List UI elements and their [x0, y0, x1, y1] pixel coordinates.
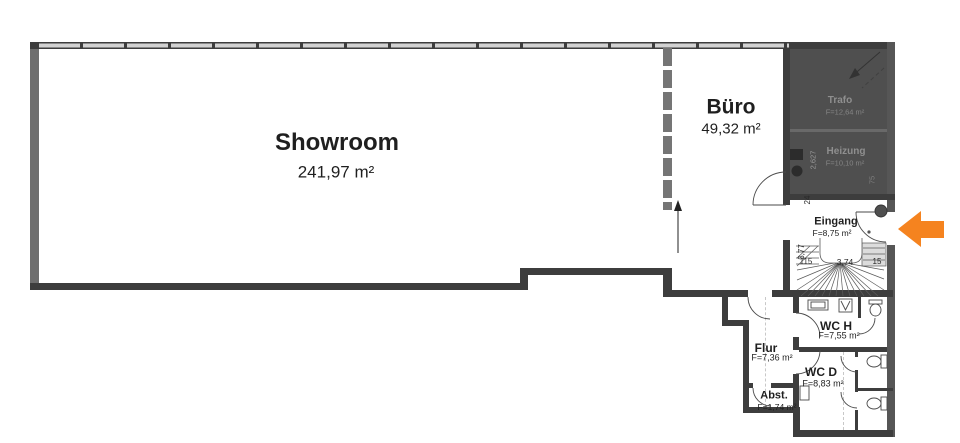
cable-route-arrow-icon	[849, 52, 884, 88]
door-flur-wch	[796, 313, 820, 337]
wch-toilet-tank	[869, 300, 882, 304]
room-area-showroom: 241,97 m²	[298, 164, 375, 181]
room-area-eingang: F=8,75 m²	[813, 229, 852, 238]
wch-sink-basin	[811, 302, 825, 308]
room-label-eingang: Eingang	[814, 217, 857, 228]
dim-3-74: 3,74	[837, 258, 854, 267]
floor-plan: Showroom 241,97 m² Büro 49,32 m² Trafo F…	[0, 0, 960, 443]
room-area-flur: F=7,36 m²	[751, 354, 792, 363]
dim-24: 24	[804, 196, 812, 205]
heizung-equipment-round	[792, 166, 803, 177]
direction-arrow-icon	[674, 200, 682, 253]
door-buero-flur	[748, 297, 770, 319]
dim-75: 75	[868, 176, 876, 184]
room-area-wcd: F=8,83 m²	[802, 380, 843, 389]
door-wcd-stall-1	[841, 356, 857, 372]
wcd-toilet2-bowl	[867, 398, 881, 409]
door-buero-eingang	[753, 172, 786, 205]
heizung-equipment-box	[790, 149, 803, 160]
door-wch-stall	[859, 318, 875, 334]
dim-2-627: 2,627	[809, 151, 817, 170]
room-label-trafo: Trafo	[828, 96, 852, 106]
entrance-marker-arrow-icon	[898, 211, 944, 247]
staircase	[796, 238, 886, 296]
room-area-trafo: F=12,64 m²	[826, 108, 865, 116]
room-label-wcd: WC D	[805, 366, 837, 378]
wcd-toilet1-bowl	[867, 356, 881, 367]
room-label-heizung: Heizung	[827, 147, 866, 157]
column-circle	[875, 205, 887, 217]
door-handle-dot	[867, 230, 870, 233]
room-label-buero: Büro	[707, 97, 756, 118]
room-label-abst: Abst.	[760, 391, 788, 402]
room-area-abst: F=1,74 m²	[758, 403, 797, 412]
dim-115: 115	[800, 258, 813, 266]
room-area-heizung: F=10,10 m²	[826, 159, 865, 167]
room-label-showroom: Showroom	[275, 131, 399, 155]
door-wcd-stall-2	[841, 392, 857, 408]
wcd-toilet2-tank	[881, 397, 887, 410]
dim-15: 15	[873, 258, 882, 266]
wcd-toilet1-tank	[881, 355, 887, 368]
room-area-buero: 49,32 m²	[701, 122, 760, 137]
wch-toilet-bowl	[870, 304, 881, 316]
room-area-wch: F=7,55 m²	[818, 332, 859, 341]
